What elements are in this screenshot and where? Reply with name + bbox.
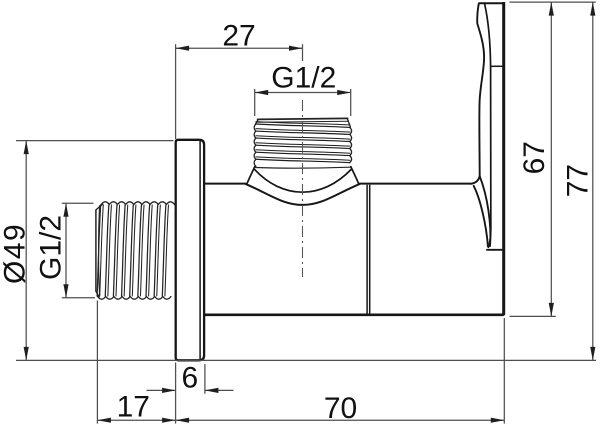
svg-text:Ø49: Ø49 (0, 223, 31, 284)
svg-text:27: 27 (222, 20, 255, 53)
svg-text:G1/2: G1/2 (271, 61, 336, 94)
svg-text:17: 17 (117, 390, 150, 423)
svg-text:6: 6 (181, 361, 198, 394)
svg-text:77: 77 (562, 164, 595, 197)
svg-text:67: 67 (518, 141, 551, 174)
svg-text:G1/2: G1/2 (34, 215, 67, 280)
svg-text:70: 70 (324, 392, 357, 425)
